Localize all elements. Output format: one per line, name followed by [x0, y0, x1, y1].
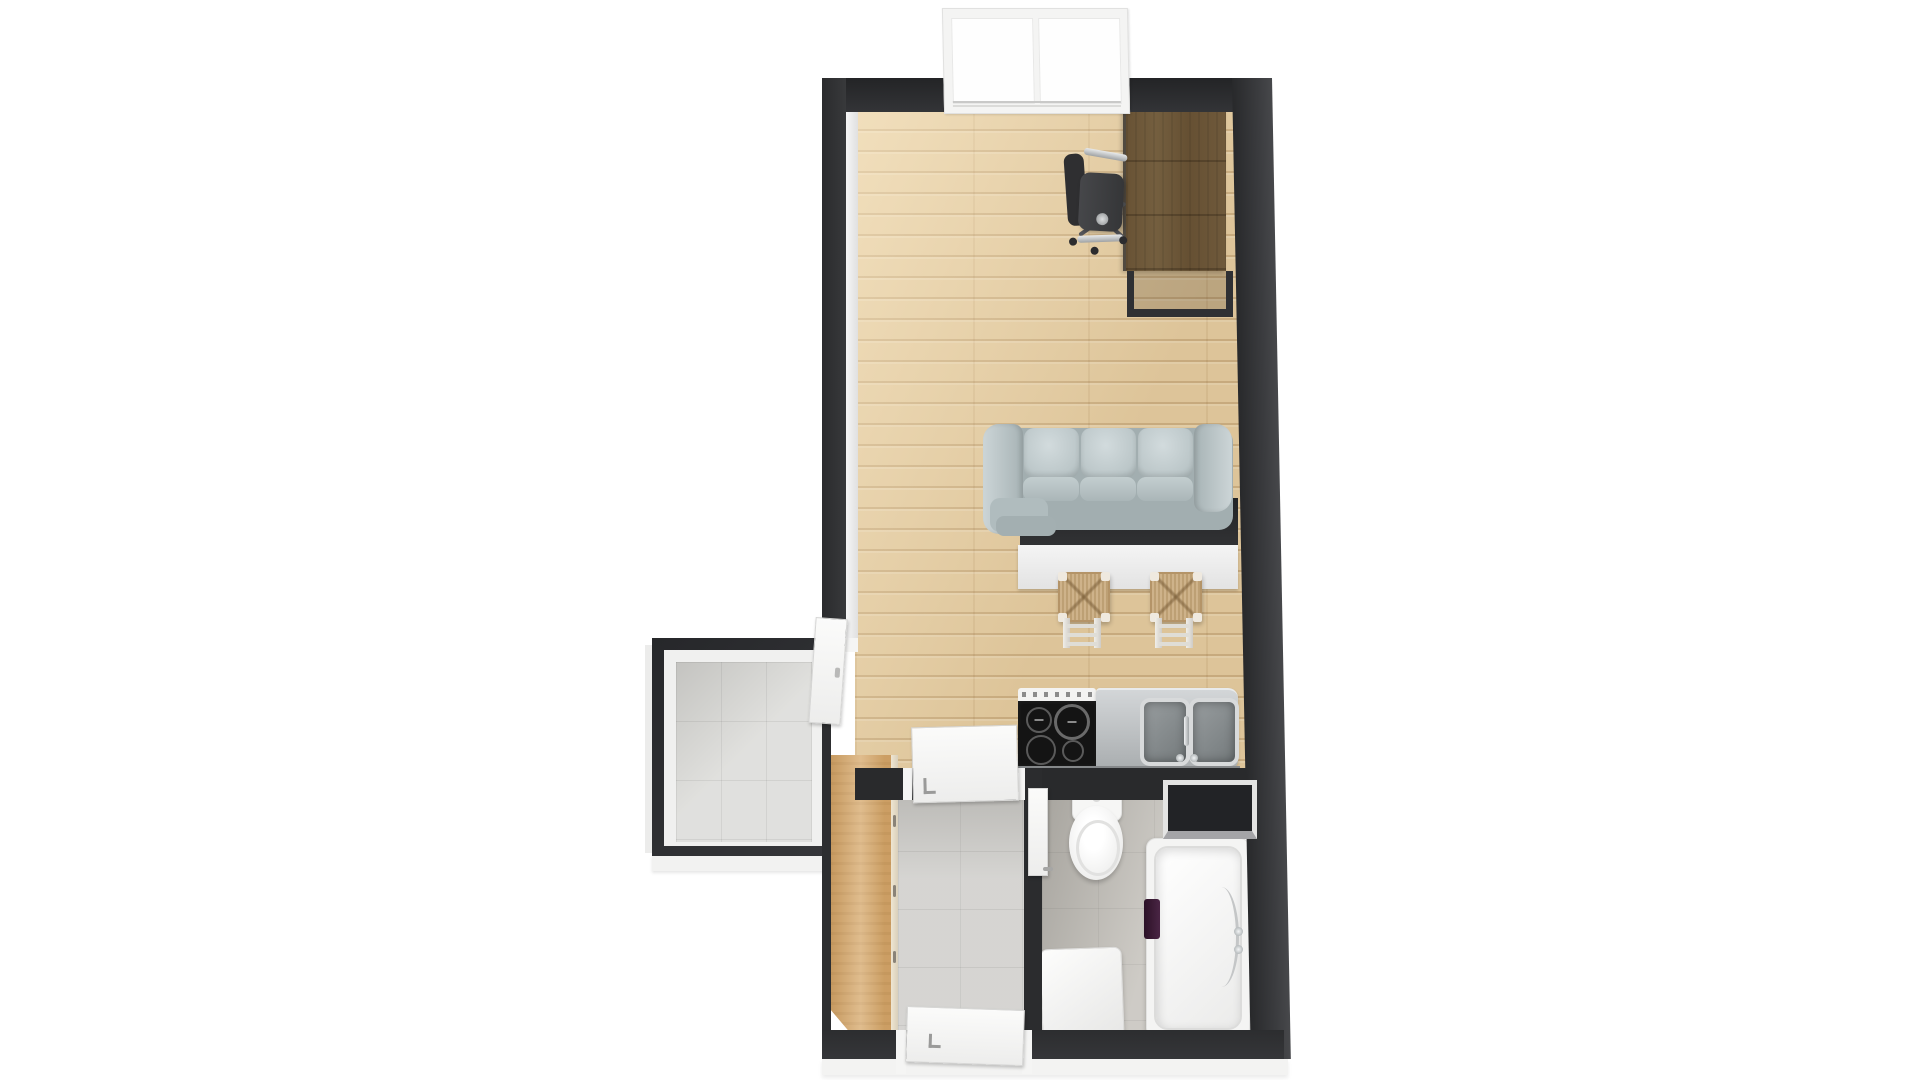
wall-bottom	[822, 1030, 1284, 1059]
door-handle	[835, 667, 841, 677]
burner	[1026, 707, 1052, 733]
bar-stool	[1150, 572, 1202, 622]
window	[942, 8, 1130, 114]
sink-tap	[1176, 754, 1184, 762]
sofa-corner-cushion	[996, 516, 1056, 536]
door-handle	[923, 778, 926, 794]
bathtub-tap	[1234, 927, 1243, 936]
bathroom-wall-niche	[1163, 780, 1257, 839]
entry-door	[905, 1006, 1025, 1066]
wardrobe-handle	[893, 951, 896, 963]
kitchen-sink-unit	[1096, 688, 1238, 770]
door-handle	[1043, 867, 1053, 871]
wardrobe-handle	[893, 815, 896, 827]
stove-knobs	[1022, 692, 1092, 697]
stove-cooktop	[1018, 701, 1096, 767]
balcony-bottom-wall-face	[652, 856, 830, 871]
wardrobe-handle	[893, 885, 896, 897]
window-sill-line	[953, 105, 1121, 107]
burner	[1026, 735, 1056, 765]
wall-inner-face-left	[845, 94, 858, 646]
door-handle	[929, 1034, 932, 1048]
toilet-bowl	[1069, 806, 1123, 880]
sink-tap	[1190, 754, 1198, 762]
washing-machine	[1039, 947, 1124, 1040]
sofa-armrest-right	[1194, 424, 1232, 512]
bathroom-door	[1028, 788, 1048, 876]
door-living-to-hallway	[911, 725, 1019, 804]
window-pane	[951, 18, 1035, 104]
floor-plan-render	[0, 0, 1920, 1080]
wall-bottom-outer-face	[822, 1059, 1288, 1075]
desk-metal-frame	[1127, 271, 1233, 317]
bathtub	[1146, 838, 1250, 1038]
bar-stool	[1058, 572, 1110, 622]
sofa-back-cushion	[1138, 428, 1193, 478]
wall-left	[822, 78, 846, 646]
window-sill-line	[953, 101, 1121, 103]
balcony-outer-wall-face	[645, 645, 652, 853]
burner	[1054, 704, 1090, 740]
sofa-seat-cushion	[1080, 477, 1136, 501]
door-jamb	[903, 768, 912, 800]
balcony-door	[808, 617, 847, 725]
hallway-tile-floor	[898, 793, 1026, 1037]
desk	[1123, 108, 1226, 271]
burner	[1062, 740, 1084, 762]
window-pane	[1038, 18, 1122, 104]
purple-towel	[1144, 899, 1160, 939]
sofa-seat-cushion	[1137, 477, 1193, 501]
bathtub-tap	[1234, 945, 1243, 954]
stove-control-panel	[1018, 688, 1096, 701]
office-chair	[1060, 141, 1140, 269]
sink-faucet	[1184, 716, 1189, 746]
balcony-tile-floor	[676, 662, 812, 842]
door-jamb	[845, 638, 858, 652]
sofa-back-cushion	[1081, 428, 1136, 478]
toilet-seat	[1076, 820, 1120, 876]
breakfast-bar-island	[1018, 545, 1238, 589]
sofa-back-cushion	[1024, 428, 1079, 478]
